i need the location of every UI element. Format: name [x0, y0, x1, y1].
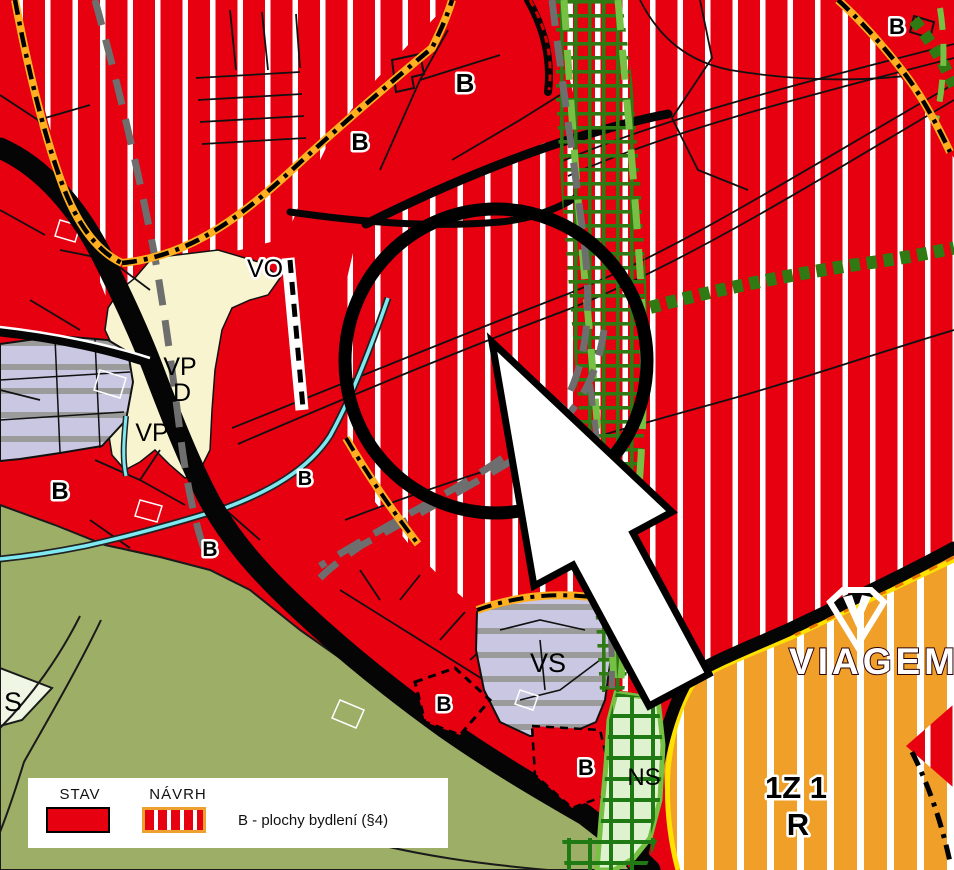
- region-label-1z1: 1Z 1: [765, 770, 827, 805]
- legend-stav-label: STAV: [60, 786, 101, 803]
- map-svg: VIAGEM BBBVOVPDVPBBBVSBBNSS1Z 1R: [0, 0, 954, 870]
- legend-navrh-swatch: [142, 807, 206, 833]
- region-label-b: B: [298, 468, 312, 490]
- legend-item-label: B - plochy bydlení (§4): [238, 812, 388, 829]
- region-label-vo: VO: [247, 255, 283, 283]
- viagem-logo-text: VIAGEM: [789, 641, 954, 682]
- legend-stav-swatch: [46, 807, 110, 833]
- region-label-b: B: [351, 129, 368, 156]
- legend-navrh-label: NÁVRH: [149, 786, 207, 803]
- region-label-b: B: [578, 755, 594, 780]
- legend-box: STAV NÁVRH B - plochy bydlení (§4): [28, 778, 448, 848]
- region-label-b: B: [436, 693, 451, 716]
- region-label-b: B: [456, 68, 475, 98]
- region-label-d: D: [173, 379, 191, 407]
- region-label-b: B: [202, 538, 217, 561]
- region-label-b: B: [51, 478, 68, 505]
- region-label-r: R: [787, 807, 809, 842]
- region-label-s: S: [4, 687, 22, 717]
- region-label-vs: VS: [530, 648, 566, 678]
- region-label-ns: NS: [627, 764, 660, 791]
- ns-grid-over-olive: [562, 838, 658, 870]
- region-label-vp: VP: [163, 353, 196, 381]
- region-label-b: B: [889, 14, 905, 39]
- region-label-vp: VP: [135, 419, 168, 447]
- zoning-map-canvas: VIAGEM BBBVOVPDVPBBBVSBBNSS1Z 1R STAV NÁ…: [0, 0, 954, 870]
